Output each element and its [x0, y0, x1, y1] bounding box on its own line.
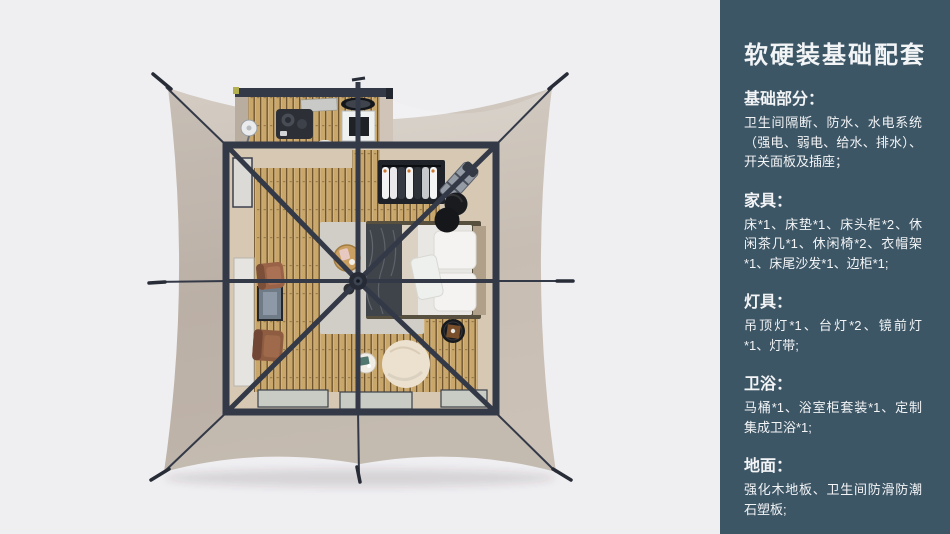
section-body: 床*1、床垫*1、床头柜*2、休闲茶几*1、休闲椅*2、衣帽架*1、床尾沙发*1… [744, 215, 922, 274]
wall-mirror [258, 287, 282, 320]
hanging-clothes [382, 167, 437, 199]
section-furniture: 家具： 床*1、床垫*1、床头柜*2、休闲茶几*1、休闲椅*2、衣帽架*1、床尾… [744, 192, 924, 274]
section-body: 卫生间隔断、防水、水电系统（强电、弱电、给水、排水）、开关面板及插座； [744, 113, 922, 172]
section-body: 吊顶灯*1、台灯*2、镜前灯*1、灯带; [744, 316, 922, 355]
section-heading: 地面： [744, 457, 924, 477]
section-lighting: 灯具： 吊顶灯*1、台灯*2、镜前灯*1、灯带; [744, 293, 924, 355]
section-heading: 家具： [744, 192, 924, 212]
slide: 软硬装基础配套 基础部分： 卫生间隔断、防水、水电系统（强电、弱电、给水、排水）… [0, 0, 950, 534]
toilet [276, 109, 313, 139]
section-heading: 灯具： [744, 293, 924, 313]
section-body: 马桶*1、浴室柜套装*1、定制集成卫浴*1; [744, 398, 922, 437]
window-left-lower [234, 258, 254, 386]
bean-bag [382, 340, 430, 388]
wardrobe-rack [378, 160, 445, 204]
section-heading: 基础部分： [744, 90, 924, 110]
lounge-chair-upper [256, 262, 286, 291]
floor-windows [258, 390, 487, 409]
round-side-table [441, 319, 465, 343]
section-flooring: 地面： 强化木地板、卫生间防滑防潮石塑板; [744, 457, 924, 519]
section-basics: 基础部分： 卫生间隔断、防水、水电系统（强电、弱电、给水、排水）、开关面板及插座… [744, 90, 924, 172]
section-body: 强化木地板、卫生间防滑防潮石塑板; [744, 480, 922, 519]
center-hub [349, 272, 367, 290]
page-title: 软硬装基础配套 [744, 40, 924, 72]
spec-panel: 软硬装基础配套 基础部分： 卫生间隔断、防水、水电系统（强电、弱电、给水、排水）… [720, 0, 950, 534]
floorplan-render [0, 0, 720, 534]
section-bathroom: 卫浴： 马桶*1、浴室柜套装*1、定制集成卫浴*1; [744, 375, 924, 437]
section-heading: 卫浴： [744, 375, 924, 395]
